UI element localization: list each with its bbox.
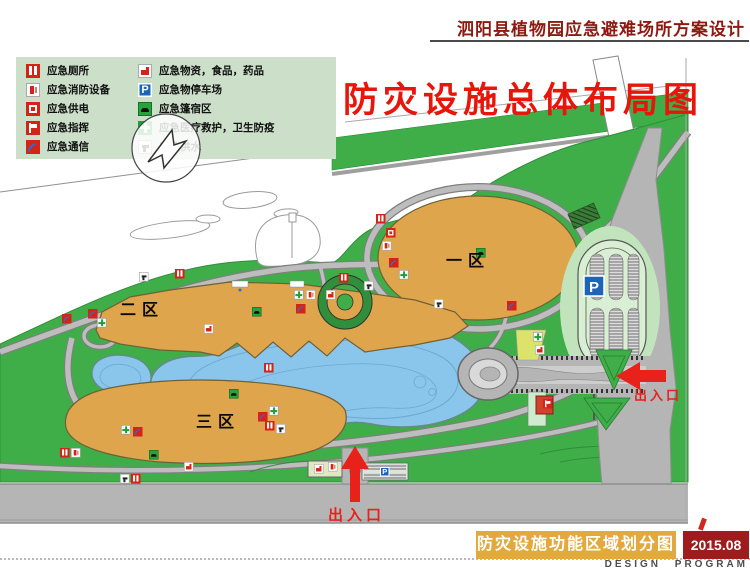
toilet-map-icon [131, 474, 141, 484]
zone-2-label: 二区 [120, 296, 164, 320]
legend-label: 应急物资，食品，药品 [159, 63, 264, 78]
toilet-map-icon [264, 363, 274, 373]
supplies-map-icon [326, 290, 336, 300]
zone-1-label: 一区 [446, 247, 490, 271]
water-map-icon [434, 299, 444, 309]
fire-map-icon [306, 290, 316, 300]
supplies-icon [138, 64, 152, 78]
fire-equipment-icon [26, 83, 40, 97]
parking-icon [138, 83, 152, 97]
water-map-icon [139, 272, 149, 282]
toilet-icon [26, 64, 40, 78]
legend-label: 应急消防设备 [47, 82, 110, 97]
supplies-map-icon [314, 464, 324, 474]
tent-map-icon [149, 450, 159, 460]
toilet-map-icon [376, 214, 386, 224]
medical-map-icon [121, 425, 131, 435]
medical-map-icon [294, 290, 304, 300]
toilet-map-icon [60, 448, 70, 458]
legend-item-supplies: 应急物资，食品，药品 [138, 61, 334, 80]
power-map-icon [386, 228, 396, 238]
supplies-map-icon [535, 345, 545, 355]
supplies-map-icon [184, 462, 194, 472]
command-icon [26, 121, 40, 135]
fire-map-icon [382, 241, 392, 251]
legend-item-parking: 应急物停车场 [138, 80, 334, 99]
fire-map-icon [71, 448, 81, 458]
legend-label: 应急供电 [47, 101, 89, 116]
toilet-map-icon [339, 273, 349, 283]
legend-label: 应急通信 [47, 139, 89, 154]
east-entrance-label: 出入口 [634, 385, 682, 404]
phone-map-icon [133, 427, 143, 437]
legend-item-fire: 应急消防设备 [26, 80, 138, 99]
plan-title: 防灾设施总体布局图 [343, 72, 723, 123]
south-entrance-label: 出入口 [328, 504, 385, 525]
phone-map-icon [507, 301, 517, 311]
phone-map-icon [296, 304, 306, 314]
legend-label: 应急物停车场 [159, 82, 222, 97]
medical-map-icon [97, 318, 107, 328]
medical-map-icon [533, 332, 543, 342]
medical-map-icon [269, 406, 279, 416]
command-map-icon [543, 399, 553, 409]
site-plan-page: P [0, 0, 750, 573]
north-arrow [118, 110, 214, 186]
zone-3-label: 三区 [196, 408, 240, 432]
phone-map-icon [62, 314, 72, 324]
legend-label: 应急指挥 [47, 120, 89, 135]
water-map-icon [276, 424, 286, 434]
project-title: 泗阳县植物园应急避难场所方案设计 [457, 15, 745, 40]
fire-map-icon [328, 462, 338, 472]
medical-map-icon [399, 270, 409, 280]
legend-item-toilet: 应急厕所 [26, 61, 138, 80]
legend-label: 应急厕所 [47, 63, 89, 78]
tent-map-icon [252, 307, 262, 317]
supplies-map-icon [204, 324, 214, 334]
header-rule [430, 40, 749, 42]
phone-map-icon [389, 258, 399, 268]
tent-map-icon [229, 389, 239, 399]
parking-map-icon [380, 467, 390, 477]
water-map-icon [364, 281, 374, 291]
water-map-icon [120, 474, 130, 484]
telecom-icon [26, 140, 40, 154]
toilet-map-icon [265, 421, 275, 431]
toilet-map-icon [175, 269, 185, 279]
power-icon [26, 102, 40, 116]
